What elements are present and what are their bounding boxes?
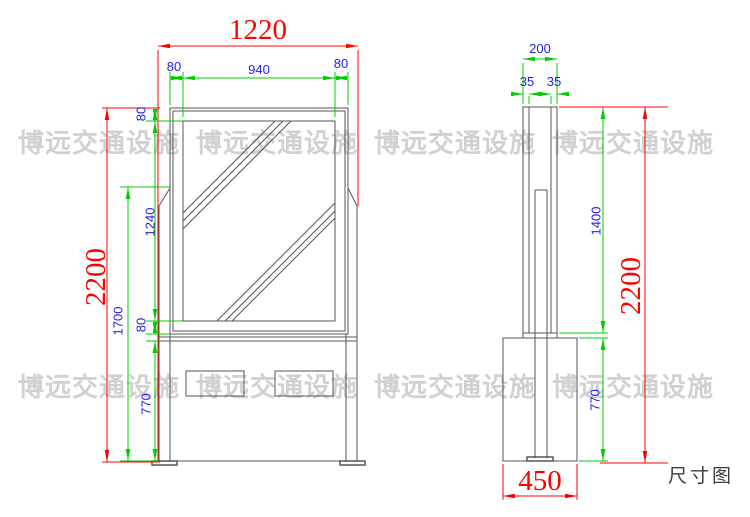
watermark-text: 博远交通设施: [552, 128, 714, 159]
dim-frame-top-80: 80: [134, 107, 149, 121]
side-view: [503, 107, 577, 461]
side-dimensions: 200 35 35 1400 770 2200 450: [503, 41, 668, 500]
watermark-text: 博远交通设施: [552, 372, 714, 403]
side-foot: [527, 457, 553, 461]
dim-wall-back-35: 35: [547, 74, 561, 89]
dim-overall-width-1220: 1220: [229, 14, 287, 46]
front-view: [152, 108, 365, 465]
watermark-text: 博远交通设施: [196, 128, 358, 159]
dim-overall-height-2200-side: 2200: [615, 257, 647, 315]
drawing-caption: 尺寸图: [668, 465, 734, 487]
dim-base-height-770-front: 770: [139, 393, 154, 415]
front-side-posts: [159, 188, 357, 461]
watermark-text: 博远交通设施: [374, 372, 536, 403]
dim-glass-height-1240: 1240: [143, 208, 158, 237]
dim-body-height-1700: 1700: [111, 307, 126, 336]
dim-frame-bottom-80: 80: [134, 318, 149, 332]
dim-base-depth-450: 450: [518, 465, 562, 497]
dim-frame-right-80: 80: [334, 56, 348, 71]
watermark-layer: 博远交通设施 博远交通设施 博远交通设施 博远交通设施 博远交通设施 博远交通设…: [18, 128, 714, 403]
dim-wall-front-35: 35: [520, 74, 534, 89]
front-foot-right: [340, 461, 365, 465]
dim-box-height-1400: 1400: [589, 207, 604, 236]
dim-frame-left-80: 80: [167, 59, 181, 74]
watermark-text: 博远交通设施: [18, 128, 180, 159]
dim-glass-width-940: 940: [248, 62, 270, 77]
front-collar-band: [159, 337, 357, 341]
dimension-drawing-page: 博远交通设施 博远交通设施 博远交通设施 博远交通设施 博远交通设施 博远交通设…: [0, 0, 750, 517]
watermark-text: 博远交通设施: [374, 128, 536, 159]
side-pole: [535, 190, 547, 458]
dim-depth-200: 200: [529, 41, 551, 56]
glass-glare-lines-lower: [217, 203, 335, 321]
dim-base-height-770-side: 770: [588, 389, 603, 411]
dimension-drawing-canvas: 博远交通设施 博远交通设施 博远交通设施 博远交通设施 博远交通设施 博远交通设…: [0, 0, 750, 517]
watermark-text: 博远交通设施: [18, 372, 180, 403]
watermark-text: 博远交通设施: [196, 372, 358, 403]
dim-overall-height-2200-front: 2200: [80, 248, 112, 306]
